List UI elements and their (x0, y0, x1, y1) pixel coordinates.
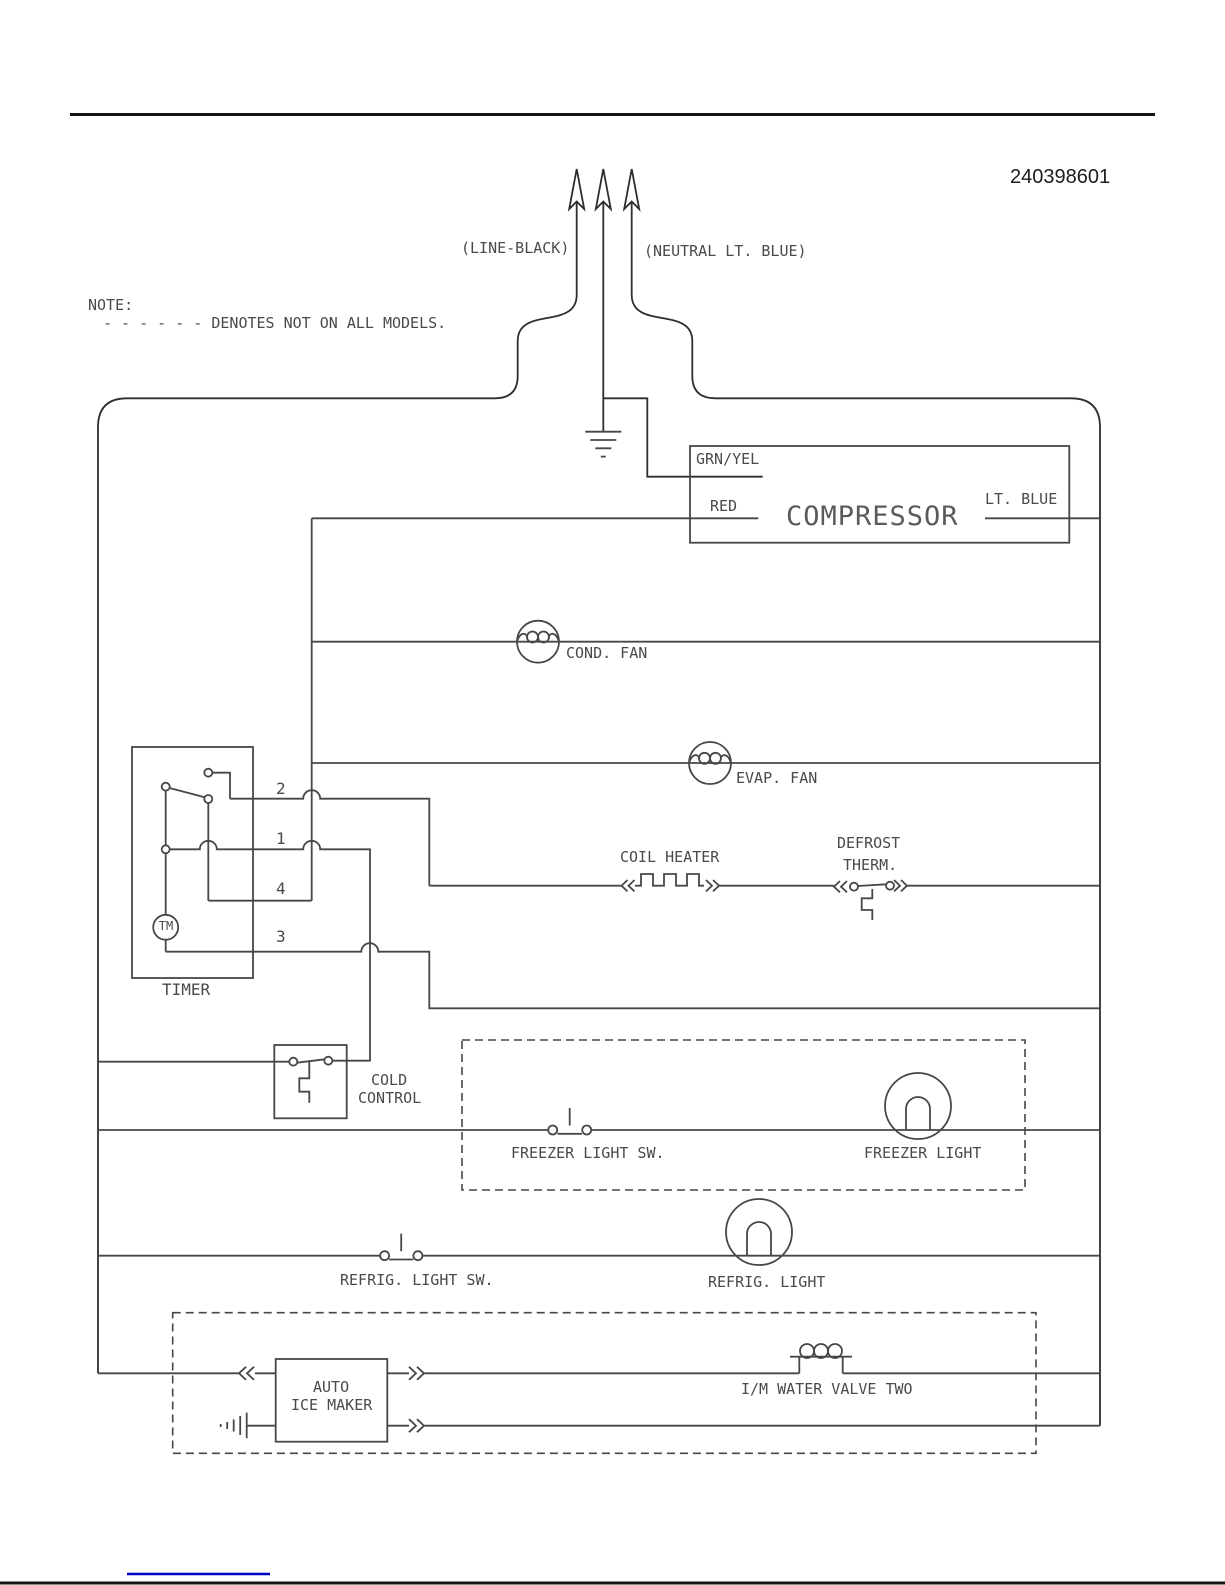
wiring-diagram-page: 240398601 (LINE-BLACK) (NEUTRAL LT. BLUE… (0, 0, 1225, 1585)
timer-wire-2 (230, 790, 429, 886)
disconnect-chevron-icon (713, 880, 719, 891)
earth-ground-icon (585, 432, 621, 457)
timer-terminal-4: 4 (276, 880, 286, 898)
ice-maker-label-line1: AUTO (313, 1379, 349, 1396)
neutral-label: (NEUTRAL LT. BLUE) (644, 243, 807, 260)
optional-models-dashed-box (462, 1040, 1025, 1190)
timer-terminal-3: 3 (276, 928, 286, 946)
coil-heater-symbol (429, 874, 834, 891)
timer-motor-label: TM (151, 920, 181, 933)
timer-terminal-2: 2 (276, 780, 286, 798)
compressor-label: COMPRESSOR (786, 502, 959, 532)
cond-fan-symbol (312, 621, 1100, 663)
cold-control-arm (297, 1059, 325, 1062)
refrig-light-circuit (98, 1199, 1100, 1265)
disconnect-chevron-icon (894, 880, 900, 891)
part-number: 240398601 (1010, 166, 1110, 188)
disconnect-chevron-icon (239, 1367, 246, 1380)
water-valve-label: I/M WATER VALVE TWO (741, 1381, 913, 1398)
disconnect-chevron-icon (247, 1367, 254, 1380)
evap-fan-label: EVAP. FAN (736, 770, 817, 787)
ice-maker-label-line2: ICE MAKER (291, 1397, 372, 1414)
heater-element-icon (635, 874, 704, 886)
disconnect-chevron-icon (622, 880, 628, 891)
coil-heater-label: COIL HEATER (620, 849, 719, 866)
freezer-light-label: FREEZER LIGHT (864, 1145, 981, 1162)
refrig-light-label: REFRIG. LIGHT (708, 1274, 825, 1291)
compressor-red-label: RED (710, 498, 737, 515)
timer-wire-3 (166, 943, 1100, 1008)
freezer-light-sw-label: FREEZER LIGHT SW. (511, 1145, 665, 1162)
timer-switch-arm (170, 788, 205, 797)
power-supply-arrows (98, 169, 1100, 1426)
note-heading: NOTE: (88, 297, 133, 314)
line-black-label: (LINE-BLACK) (461, 240, 569, 257)
disconnect-chevron-icon (417, 1367, 424, 1380)
defrost-thermostat-symbol (834, 880, 1100, 920)
disconnect-chevron-icon (417, 1419, 424, 1432)
timer-label: TIMER (162, 981, 210, 999)
refrig-light-sw-label: REFRIG. LIGHT SW. (340, 1272, 494, 1289)
wiring-diagram-linework (0, 0, 1225, 1585)
timer-terminal-1: 1 (276, 830, 286, 848)
ice-maker-circuit (98, 1313, 1100, 1454)
cold-control-label-line2: CONTROL (358, 1090, 421, 1107)
compressor-lt-blue-label: LT. BLUE (985, 491, 1057, 508)
disconnect-chevron-icon (409, 1367, 416, 1380)
disconnect-chevron-icon (841, 881, 847, 892)
thermostat-arm (858, 884, 886, 886)
cold-control-symbol (98, 1045, 347, 1118)
chassis-ground-icon (221, 1413, 247, 1439)
note-body: - - - - - - DENOTES NOT ON ALL MODELS. (103, 315, 446, 332)
evap-fan-symbol (312, 742, 1100, 784)
cold-control-label-line1: COLD (371, 1072, 407, 1089)
disconnect-chevron-icon (901, 880, 907, 891)
disconnect-chevron-icon (409, 1419, 416, 1432)
thermostat-sensor-icon (862, 889, 873, 920)
neutral-bus (632, 201, 1100, 1426)
defrost-therm-label-line1: DEFROST (837, 835, 900, 852)
disconnect-chevron-icon (629, 880, 635, 891)
disconnect-chevron-icon (706, 880, 712, 891)
cond-fan-label: COND. FAN (566, 645, 647, 662)
defrost-therm-label-line2: THERM. (843, 857, 897, 874)
disconnect-chevron-icon (834, 881, 840, 892)
timer-wire-1 (170, 841, 370, 1061)
compressor-grn-yel-label: GRN/YEL (696, 451, 759, 468)
cold-control-sensor-icon (299, 1062, 309, 1103)
